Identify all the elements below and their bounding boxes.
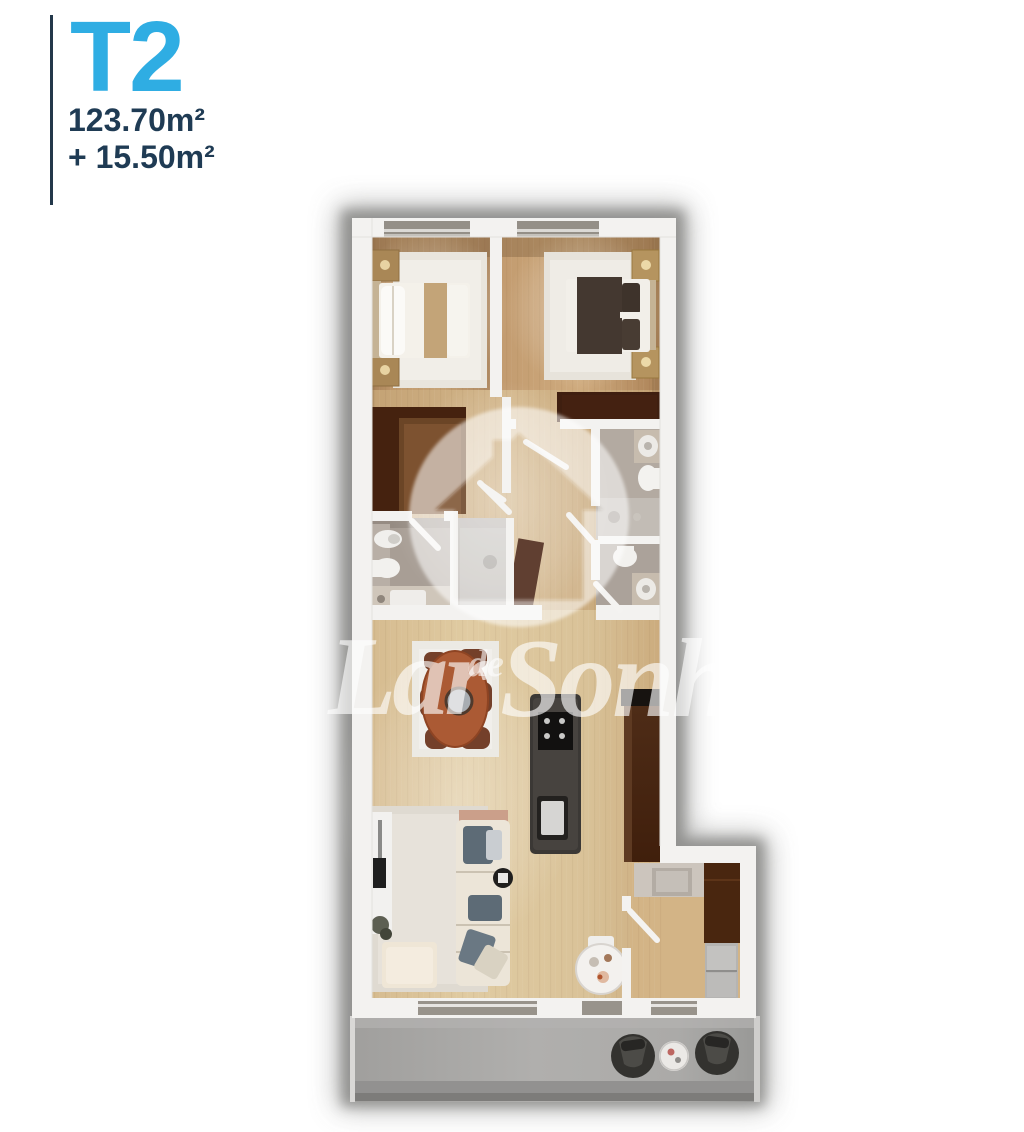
- svg-text:T2: T2: [70, 1, 183, 113]
- svg-text:de: de: [468, 643, 504, 685]
- svg-text:Sonho: Sonho: [500, 617, 784, 741]
- svg-text:123.70m²: 123.70m²: [68, 102, 205, 138]
- svg-text:Lar: Lar: [327, 615, 489, 739]
- svg-text:+ 15.50m²: + 15.50m²: [68, 139, 215, 175]
